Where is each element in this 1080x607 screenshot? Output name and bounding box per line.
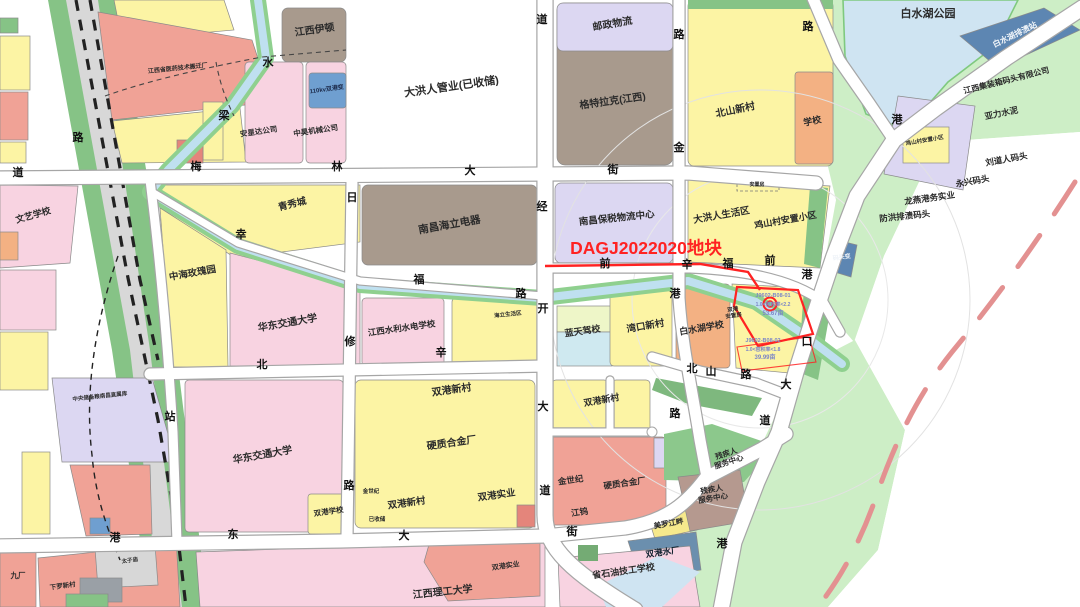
parcel-area: 39.99亩 [754, 353, 775, 361]
road-name-char: 大 [538, 399, 549, 413]
map-label: 安置房 [749, 181, 764, 188]
block [0, 332, 48, 390]
parcel-code: J9602-B08-02 [745, 338, 780, 344]
block [552, 380, 608, 432]
road-name-char: 大 [781, 377, 792, 391]
parcel-far: 1.0<容积率<1.8 [746, 346, 781, 353]
road-name-char: 港 [802, 267, 814, 281]
map-svg: 江西伊顿江西省医药技术搬迁厂110kv双港变安星达公司中昊机械公司大洪人管业(已… [0, 0, 1080, 607]
road-name-char: 幸 [236, 227, 247, 241]
road-name-char: 路 [670, 406, 682, 420]
map-label: 九厂 [10, 570, 26, 580]
block [517, 505, 535, 527]
road-name-char: 金 [673, 140, 686, 154]
block [0, 232, 18, 260]
block [0, 18, 18, 33]
road-name-char: 开 [538, 302, 549, 315]
road-name-char: 大 [465, 163, 476, 177]
road-name-char: 道 [540, 483, 551, 497]
map-label: 金世纪 [362, 487, 380, 495]
block [70, 465, 152, 536]
block [452, 298, 537, 366]
parcel-area: 53.67亩 [762, 309, 783, 317]
road-name-char: 辛 [436, 345, 447, 359]
parcel-far: 1.0<容积率<2.2 [756, 301, 791, 308]
road-name-char: 山 [706, 364, 717, 378]
road-name-char: 经 [537, 199, 548, 213]
road-name-char: 路 [344, 478, 356, 492]
road-name-char: 道 [13, 165, 24, 179]
road-name-char: 北 [687, 361, 698, 375]
planning-map-canvas: 江西伊顿江西省医药技术搬迁厂110kv双港变安星达公司中昊机械公司大洪人管业(已… [0, 0, 1080, 607]
road-name-char: 北 [257, 357, 268, 371]
road-name-char: 梅 [191, 159, 202, 173]
road-name-char: 水 [263, 55, 275, 69]
parcel-code: J9602-B08-01 [755, 293, 790, 299]
road-name-char: 站 [165, 409, 176, 423]
block [90, 518, 110, 534]
cul-de-sac [647, 427, 657, 437]
block [612, 380, 650, 432]
road-name-char: 港 [717, 536, 729, 550]
map-label: 白水湖公园 [901, 6, 956, 20]
road-name-char: 路 [73, 130, 85, 144]
road-name-char: 路 [741, 367, 753, 381]
road-name-char: 辛 [682, 257, 693, 271]
road-name-char: 港 [110, 530, 122, 544]
road-name-char: 福 [722, 256, 734, 270]
road-name-char: 日 [347, 191, 358, 204]
block [0, 92, 28, 140]
block [66, 594, 108, 607]
road-name-char: 林 [332, 159, 343, 173]
road-name-char: 路 [516, 286, 528, 300]
road-name-char: 道 [537, 12, 548, 26]
road-name-char: 福 [413, 272, 425, 286]
road-name-char: 路 [674, 27, 686, 41]
road-name-char: 修 [344, 334, 357, 348]
road-name-char: 大 [399, 528, 410, 542]
road-name-char: 口 [802, 335, 813, 348]
block [0, 270, 56, 330]
road-name-char: 街 [607, 162, 619, 176]
road-name-char: 道 [760, 413, 771, 427]
block [0, 36, 30, 90]
road-name-char: 梁 [218, 108, 231, 122]
block [22, 452, 50, 534]
shuanggang-xincun-block [355, 380, 535, 528]
road-name-char: 港 [892, 112, 904, 126]
highlight-parcel-label: DAGJ2022020地块 [570, 238, 722, 258]
road-name-char: 路 [803, 19, 815, 33]
road-name-char: 港 [670, 286, 682, 300]
road-name-char: 东 [228, 527, 239, 541]
map-label: 大洪人管业(已收储) [403, 72, 500, 99]
map-label: 已收储 [369, 515, 386, 523]
block [578, 545, 598, 561]
block [0, 142, 26, 163]
road-name-char: 街 [566, 524, 578, 538]
road-name-char: 前 [765, 253, 776, 267]
road-name-char: 前 [600, 256, 611, 270]
